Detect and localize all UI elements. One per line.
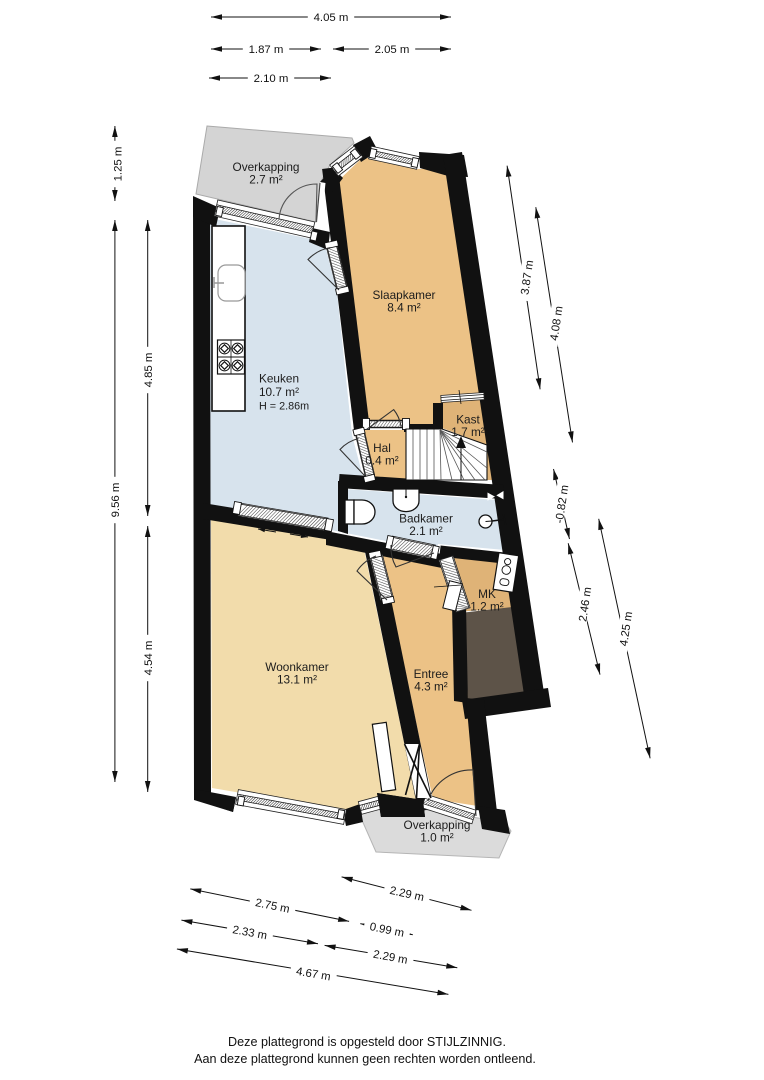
svg-text:0.4 m²: 0.4 m²	[365, 453, 399, 467]
svg-text:4.3 m²: 4.3 m²	[414, 679, 448, 693]
svg-text:4.54 m: 4.54 m	[143, 641, 155, 676]
svg-text:1.87 m: 1.87 m	[249, 44, 284, 56]
svg-text:8.4 m²: 8.4 m²	[387, 300, 421, 314]
svg-text:2.10 m: 2.10 m	[254, 73, 289, 85]
svg-text:Aan deze plattegrond kunnen ge: Aan deze plattegrond kunnen geen rechten…	[194, 1052, 536, 1066]
svg-text:H = 2.86m: H = 2.86m	[259, 401, 309, 413]
svg-text:13.1 m²: 13.1 m²	[277, 672, 317, 686]
svg-text:4.05 m: 4.05 m	[314, 12, 349, 24]
svg-text:1.25 m: 1.25 m	[113, 147, 125, 182]
svg-text:2.05 m: 2.05 m	[375, 44, 410, 56]
svg-text:9.56 m: 9.56 m	[110, 483, 122, 518]
svg-text:2.1 m²: 2.1 m²	[409, 524, 443, 538]
svg-text:1.7 m²: 1.7 m²	[451, 425, 485, 439]
svg-text:1.2 m²: 1.2 m²	[470, 599, 504, 613]
svg-text:Keuken: Keuken	[259, 372, 299, 386]
svg-text:4.85 m: 4.85 m	[143, 353, 155, 388]
svg-text:2.7 m²: 2.7 m²	[249, 172, 283, 186]
svg-text:10.7 m²: 10.7 m²	[259, 385, 299, 399]
svg-text:1.0 m²: 1.0 m²	[420, 830, 454, 844]
svg-text:Deze plattegrond is opgesteld: Deze plattegrond is opgesteld door STIJL…	[228, 1035, 506, 1049]
